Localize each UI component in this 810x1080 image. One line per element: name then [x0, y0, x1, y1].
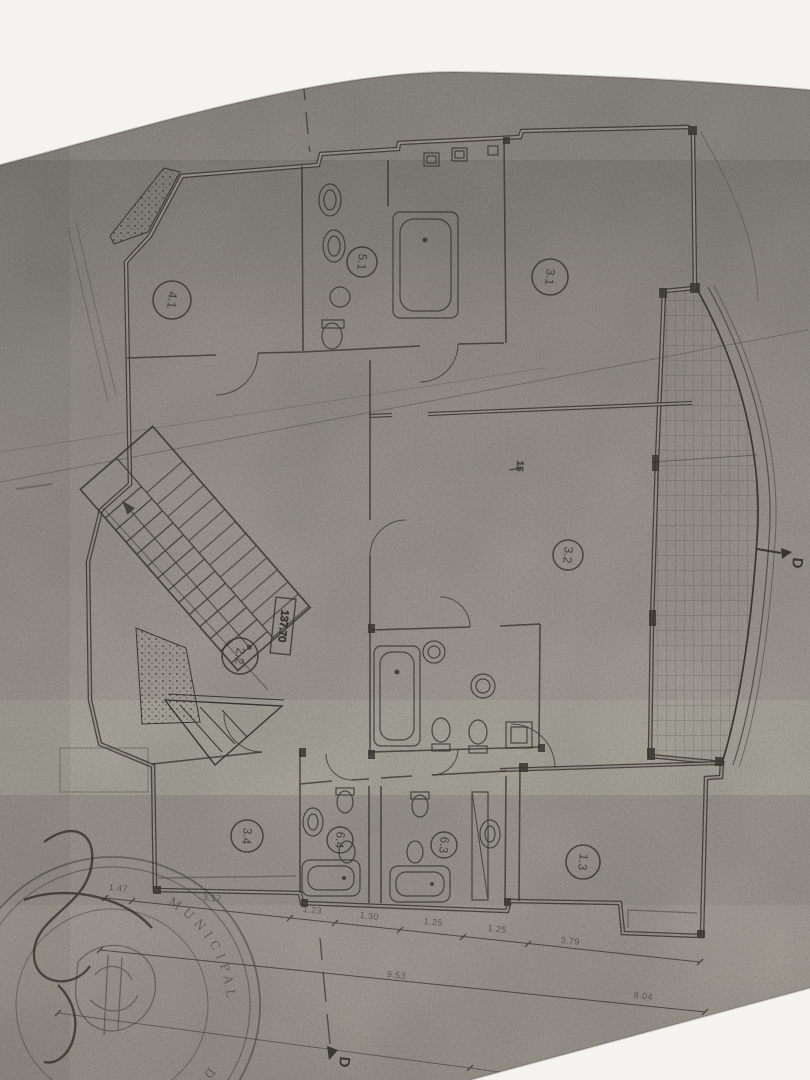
scanned-floor-plan-photo: 4.1 5.1 3.1 3.2 2.2 3.4: [0, 0, 810, 1080]
scan-noise: [0, 60, 810, 1080]
floor-plan-scan: 4.1 5.1 3.1 3.2 2.2 3.4: [0, 0, 810, 1080]
